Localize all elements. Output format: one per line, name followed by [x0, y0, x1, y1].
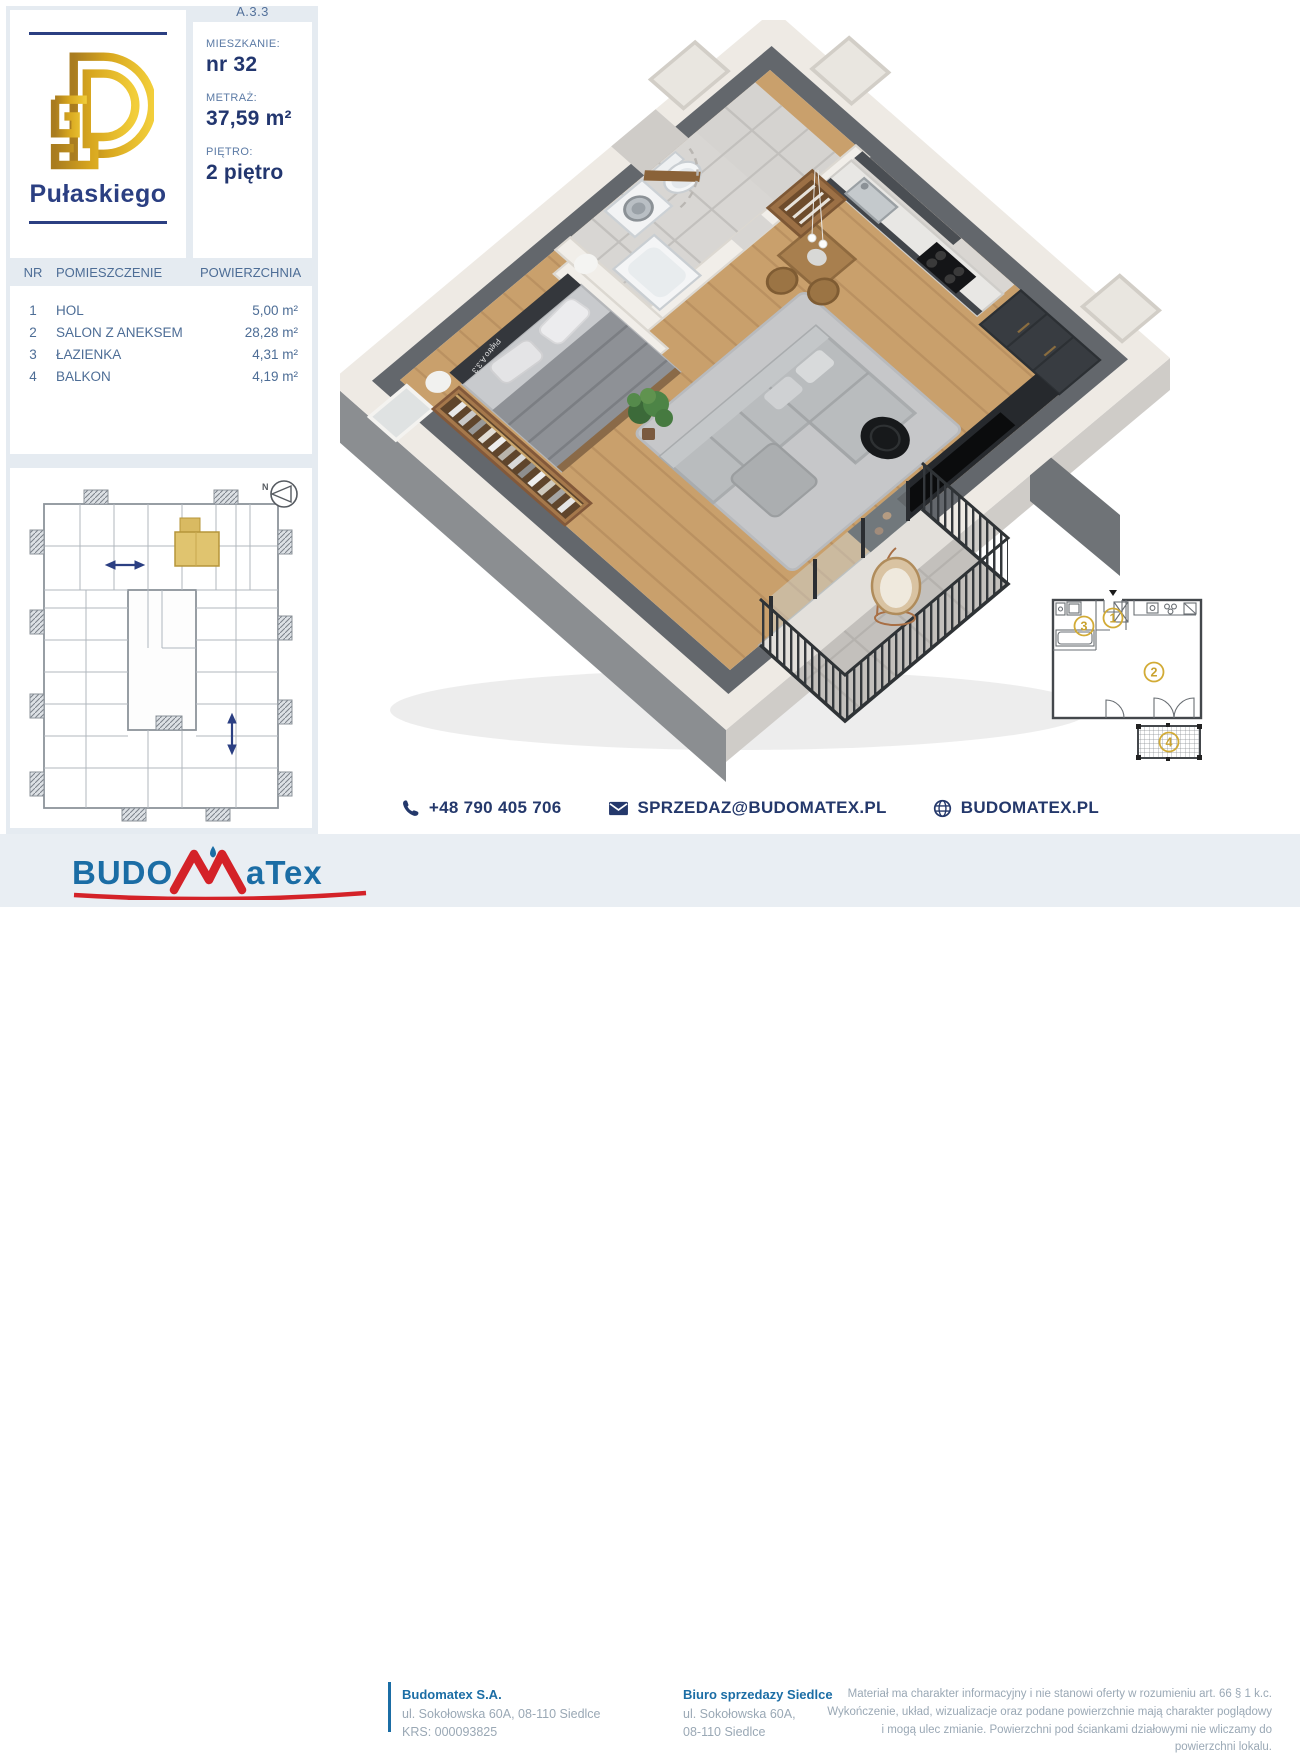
entrance-marker [1109, 590, 1117, 596]
logo-text-budo: BUDO [72, 854, 173, 891]
logo-red-m [174, 854, 242, 890]
contact-row: +48 790 405 706 SPRZEDAZ@BUDOMATEX.PL BU… [330, 798, 1170, 818]
logo-text-atex: aTex [246, 854, 323, 891]
building-outline [44, 504, 278, 808]
logo-underline [74, 893, 366, 899]
row-area: 4,31 m² [200, 347, 312, 362]
logo-droplet [210, 846, 216, 858]
email-link[interactable]: SPRZEDAZ@BUDOMATEX.PL [608, 798, 887, 818]
floor-value: 2 piętro [206, 161, 312, 185]
room-marker-3: 3 [1081, 620, 1088, 634]
compass-north-label: N [262, 482, 269, 492]
table-row: 2 SALON Z ANEKSEM 28,28 m² [10, 321, 312, 343]
building-floor-plan: N [10, 468, 312, 828]
divider [29, 32, 167, 35]
apartment-outline [1053, 600, 1201, 718]
room-marker-4: 4 [1166, 736, 1173, 750]
footer: BUDO aTex Budomatex S.A. ul. Sokołowska … [0, 834, 1300, 907]
building-plan-card: N [10, 468, 312, 828]
company-address: ul. Sokołowska 60A, 08-110 Siedlce [402, 1705, 601, 1724]
phone-link[interactable]: +48 790 405 706 [401, 798, 562, 818]
globe-icon [933, 799, 952, 818]
company-info: Budomatex S.A. ul. Sokołowska 60A, 08-11… [402, 1685, 601, 1742]
row-name: ŁAZIENKA [56, 347, 200, 362]
pulaskiego-logo [42, 45, 154, 173]
email-address: SPRZEDAZ@BUDOMATEX.PL [638, 798, 887, 818]
row-nr: 3 [10, 347, 56, 362]
project-name: Pułaskiego [10, 180, 186, 209]
rooms-table-header: NR POMIESZCZENIE POWIERZCHNIA [10, 258, 312, 286]
company-krs: KRS: 000093825 [402, 1723, 601, 1742]
header-area: POWIERZCHNIA [200, 265, 312, 280]
header-room: POMIESZCZENIE [56, 265, 200, 280]
website-link[interactable]: BUDOMATEX.PL [933, 798, 1099, 818]
row-nr: 2 [10, 325, 56, 340]
envelope-icon [608, 800, 629, 817]
divider [29, 221, 167, 224]
project-logo-card: Pułaskiego [10, 10, 186, 258]
row-name: HOL [56, 303, 200, 318]
office-address-1: ul. Sokołowska 60A, [683, 1705, 833, 1724]
footer-separator [388, 1682, 391, 1732]
phone-icon [401, 799, 420, 818]
row-area: 4,19 m² [200, 369, 312, 384]
row-nr: 4 [10, 369, 56, 384]
area-value: 37,59 m² [206, 107, 312, 131]
entrance-opening [1104, 597, 1122, 602]
budomatex-logo: BUDO aTex [70, 844, 370, 900]
table-row: 1 HOL 5,00 m² [10, 299, 312, 321]
table-row: 3 ŁAZIENKA 4,31 m² [10, 343, 312, 365]
header-nr: NR [10, 265, 56, 280]
company-name: Budomatex S.A. [402, 1685, 601, 1705]
floor-label: PIĘTRO: [206, 146, 312, 158]
row-nr: 1 [10, 303, 56, 318]
website-url: BUDOMATEX.PL [961, 798, 1099, 818]
room-marker-1: 1 [1110, 612, 1117, 626]
sales-office-info: Biuro sprzedazy Siedlce ul. Sokołowska 6… [683, 1685, 833, 1742]
table-row: 4 BALKON 4,19 m² [10, 365, 312, 387]
room-marker-2: 2 [1151, 666, 1158, 680]
office-address-2: 08-110 Siedlce [683, 1723, 833, 1742]
row-name: SALON Z ANEKSEM [56, 325, 200, 340]
mini-floor-plan: 1 3 2 4 [1050, 586, 1214, 770]
office-name: Biuro sprzedazy Siedlce [683, 1685, 833, 1705]
row-area: 28,28 m² [200, 325, 312, 340]
phone-number: +48 790 405 706 [429, 798, 562, 818]
row-area: 5,00 m² [200, 303, 312, 318]
rooms-table: 1 HOL 5,00 m² 2 SALON Z ANEKSEM 28,28 m²… [10, 286, 312, 454]
apartment-value: nr 32 [206, 53, 312, 77]
legal-disclaimer: Materiał ma charakter informacyjny i nie… [826, 1686, 1272, 1757]
brochure-page: { "unit_code": "A.3.3", "project": { "na… [0, 0, 1300, 919]
unit-code: A.3.3 [193, 4, 312, 22]
apartment-label: MIESZKANIE: [206, 38, 312, 50]
row-name: BALKON [56, 369, 200, 384]
unit-details-card: MIESZKANIE: nr 32 METRAŻ: 37,59 m² PIĘTR… [193, 22, 312, 258]
area-label: METRAŻ: [206, 92, 312, 104]
